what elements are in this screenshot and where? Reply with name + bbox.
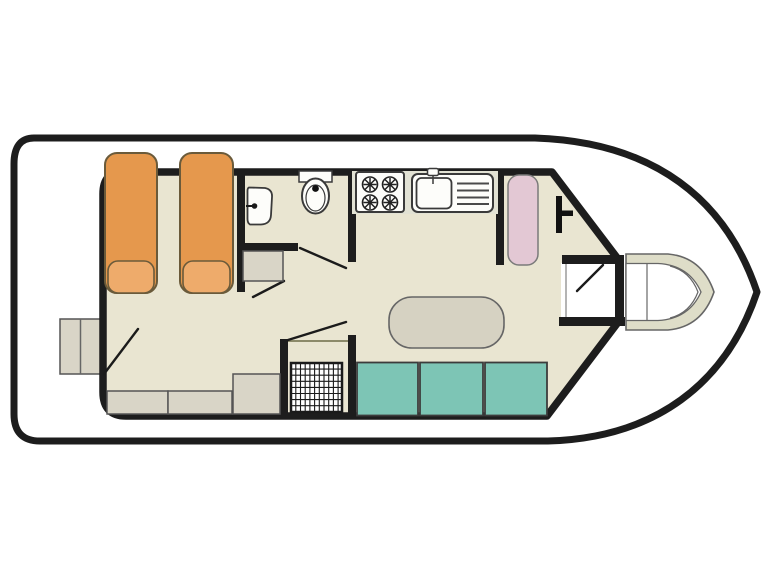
wall-doorway-bottom xyxy=(559,317,625,326)
bench-seat xyxy=(357,363,547,416)
bench-section-2 xyxy=(420,363,483,416)
cabinet-bottom-3 xyxy=(233,374,280,414)
wall-doorway-top xyxy=(562,255,624,264)
bench-section-1 xyxy=(357,363,418,416)
wall-bathroom-bottom xyxy=(237,243,298,251)
bed-right xyxy=(180,153,233,293)
wall-doorway-right xyxy=(615,255,624,326)
wall-shower-right xyxy=(348,335,356,418)
cabinet-bottom-1 xyxy=(107,391,168,414)
bed-left-pillow xyxy=(108,261,154,293)
washbasin-icon xyxy=(246,188,272,225)
cabinet-mid xyxy=(243,251,283,281)
stern-step-box xyxy=(60,319,102,374)
bed-left xyxy=(105,153,157,293)
boat-floorplan-diagram xyxy=(0,0,768,576)
sink-drainer-icon xyxy=(412,169,493,213)
hob-4-burner-icon xyxy=(356,172,404,212)
bed-right-pillow xyxy=(183,261,230,293)
dinette-table xyxy=(389,297,504,348)
bow-doorway-step xyxy=(561,263,615,318)
wardrobe xyxy=(508,175,538,265)
bench-section-3 xyxy=(485,363,547,416)
cabinet-bottom-2 xyxy=(168,391,232,414)
wall-shower-left xyxy=(280,339,288,418)
toilet-icon xyxy=(299,171,332,214)
shower-tray-grid xyxy=(291,363,342,412)
